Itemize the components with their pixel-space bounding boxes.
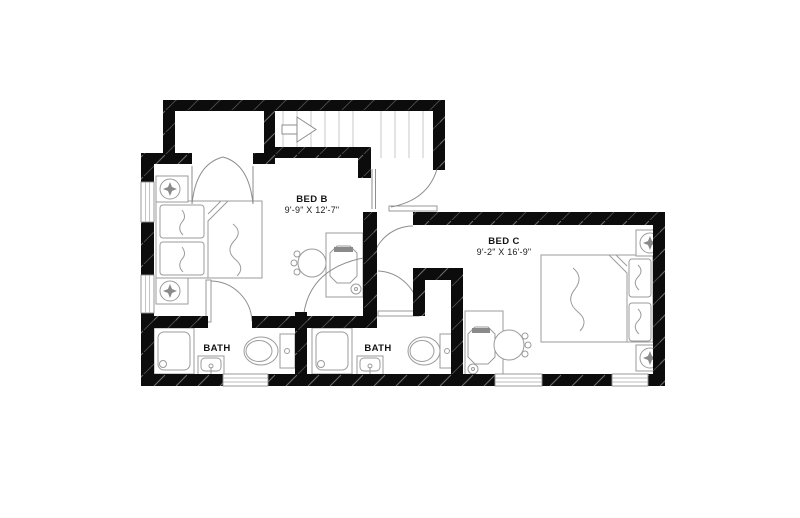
- bed-b-window-1: [141, 182, 154, 222]
- wall-left-outer-1: [141, 158, 154, 182]
- bath-2-door-leaf: [378, 311, 419, 316]
- bed-c-window-2: [612, 374, 648, 386]
- bed-c-door-swing-arc: [372, 226, 413, 267]
- bed-b-label: BED B: [296, 194, 328, 205]
- bath-2-toilet-bowl: [408, 337, 440, 365]
- bed-c-chair-petal-2: [525, 342, 531, 348]
- bed-c-chair-petal-1: [522, 333, 528, 339]
- bed-c-pillow-1: [629, 259, 651, 297]
- landing-door-leaf: [389, 206, 437, 211]
- bed-b-chair: [298, 249, 326, 277]
- bed-c-chair-petal-3: [522, 351, 528, 357]
- wall-stair-post: [358, 147, 371, 178]
- bath-1-toilet-bowl: [244, 337, 278, 365]
- wall-left-outer-2: [141, 222, 154, 275]
- wall-landing-right: [433, 100, 445, 170]
- bed-b-chair-petal-3: [294, 269, 300, 275]
- wall-bed-b-right: [363, 212, 377, 316]
- wall-bed-c-west: [451, 268, 463, 374]
- floor-plan: BED B9'-9" X 12'-7"BED C9'-2" X 16'-9"BA…: [0, 0, 800, 518]
- bath-2-shower: [312, 328, 352, 374]
- bath-1-window: [223, 374, 268, 386]
- bed-c-desk-chair-back: [472, 328, 490, 333]
- bath-2-door-swing-arc: [378, 271, 419, 313]
- bed-c-pillow-2: [629, 303, 651, 341]
- bed-b-chair-petal-2: [291, 260, 297, 266]
- bath-2-label: BATH: [364, 343, 391, 354]
- landing-door-swing-arc: [391, 169, 437, 207]
- wall-bottom-1: [141, 374, 223, 386]
- wall-bath-1-top-left: [141, 316, 208, 328]
- bed-c-chair: [494, 330, 524, 360]
- bed-c-dimensions: 9'-2" X 16'-9": [477, 247, 532, 257]
- wall-bed-c-top: [413, 212, 665, 225]
- bed-b-dimensions: 9'-9" X 12'-7": [285, 205, 340, 215]
- wall-bath-divider: [295, 312, 307, 376]
- bed-b-desk-chair-back: [334, 247, 353, 252]
- stair-direction-arrow-head: [297, 117, 316, 142]
- wall-stair-bottom: [275, 147, 367, 158]
- bed-b-chair-petal-1: [294, 251, 300, 257]
- wall-bottom-4: [648, 374, 665, 386]
- bed-c-label: BED C: [488, 236, 520, 247]
- wall-right-outer: [653, 212, 665, 386]
- wall-top: [163, 100, 445, 111]
- bath-1-door-leaf: [206, 280, 211, 322]
- wall-stair-divider: [264, 100, 275, 164]
- wall-bath-2-top: [307, 316, 377, 328]
- wall-stair-left: [163, 100, 175, 162]
- bath-1-door-swing-arc: [211, 281, 252, 321]
- bed-c-window-1: [495, 374, 542, 386]
- wall-hall-right-post: [413, 280, 425, 316]
- closet-door-left-swing-arc: [192, 157, 223, 204]
- wall-bottom-3: [542, 374, 612, 386]
- floor-plan-canvas: BED B9'-9" X 12'-7"BED C9'-2" X 16'-9"BA…: [0, 0, 800, 518]
- bath-1-label: BATH: [203, 343, 230, 354]
- stair-direction-arrow-tail: [282, 125, 297, 134]
- bath-1-shower: [154, 328, 194, 374]
- bath-1-toilet-tank: [280, 334, 295, 368]
- bed-b-window-2: [141, 275, 154, 313]
- closet-door-right-swing-arc: [223, 157, 253, 204]
